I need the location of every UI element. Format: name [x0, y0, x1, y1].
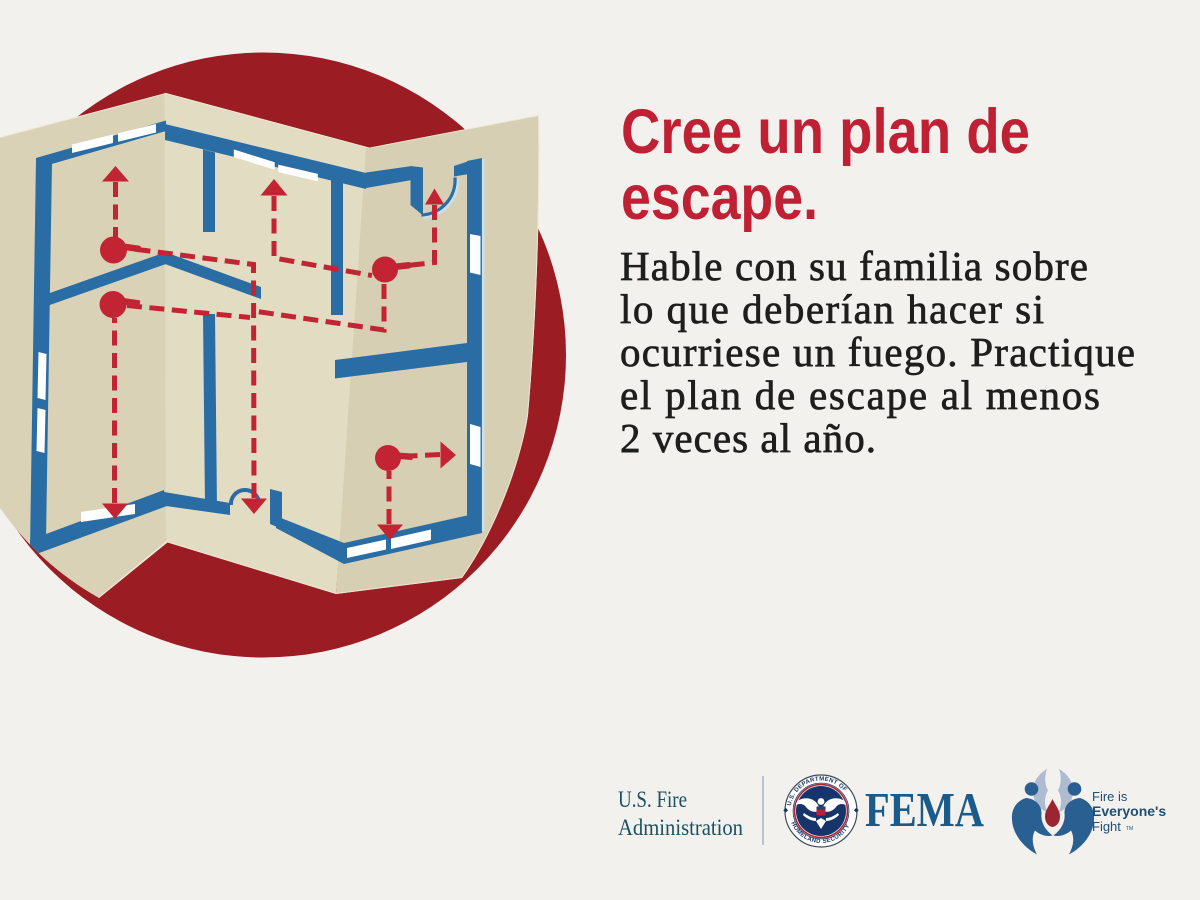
svg-text:Fight: Fight	[1092, 819, 1121, 834]
svg-text:Everyone's: Everyone's	[1092, 803, 1166, 819]
svg-text:el plan de escape al menos: el plan de escape al menos	[620, 372, 1100, 418]
svg-text:FEMA: FEMA	[865, 782, 985, 837]
svg-text:2 veces al año.: 2 veces al año.	[620, 415, 876, 461]
svg-text:Hable con su familia sobre: Hable con su familia sobre	[620, 243, 1088, 289]
svg-text:escape.: escape.	[621, 163, 818, 233]
svg-text:ocurriese un fuego. Practique: ocurriese un fuego. Practique	[620, 329, 1135, 375]
svg-text:Administration: Administration	[618, 815, 743, 841]
svg-text:lo que deberían hacer si: lo que deberían hacer si	[620, 286, 1044, 332]
svg-text:Cree un plan de: Cree un plan de	[621, 97, 1030, 167]
svg-text:TM: TM	[1126, 826, 1133, 832]
svg-text:U.S. Fire: U.S. Fire	[618, 787, 687, 813]
svg-text:Fire is: Fire is	[1092, 789, 1128, 804]
